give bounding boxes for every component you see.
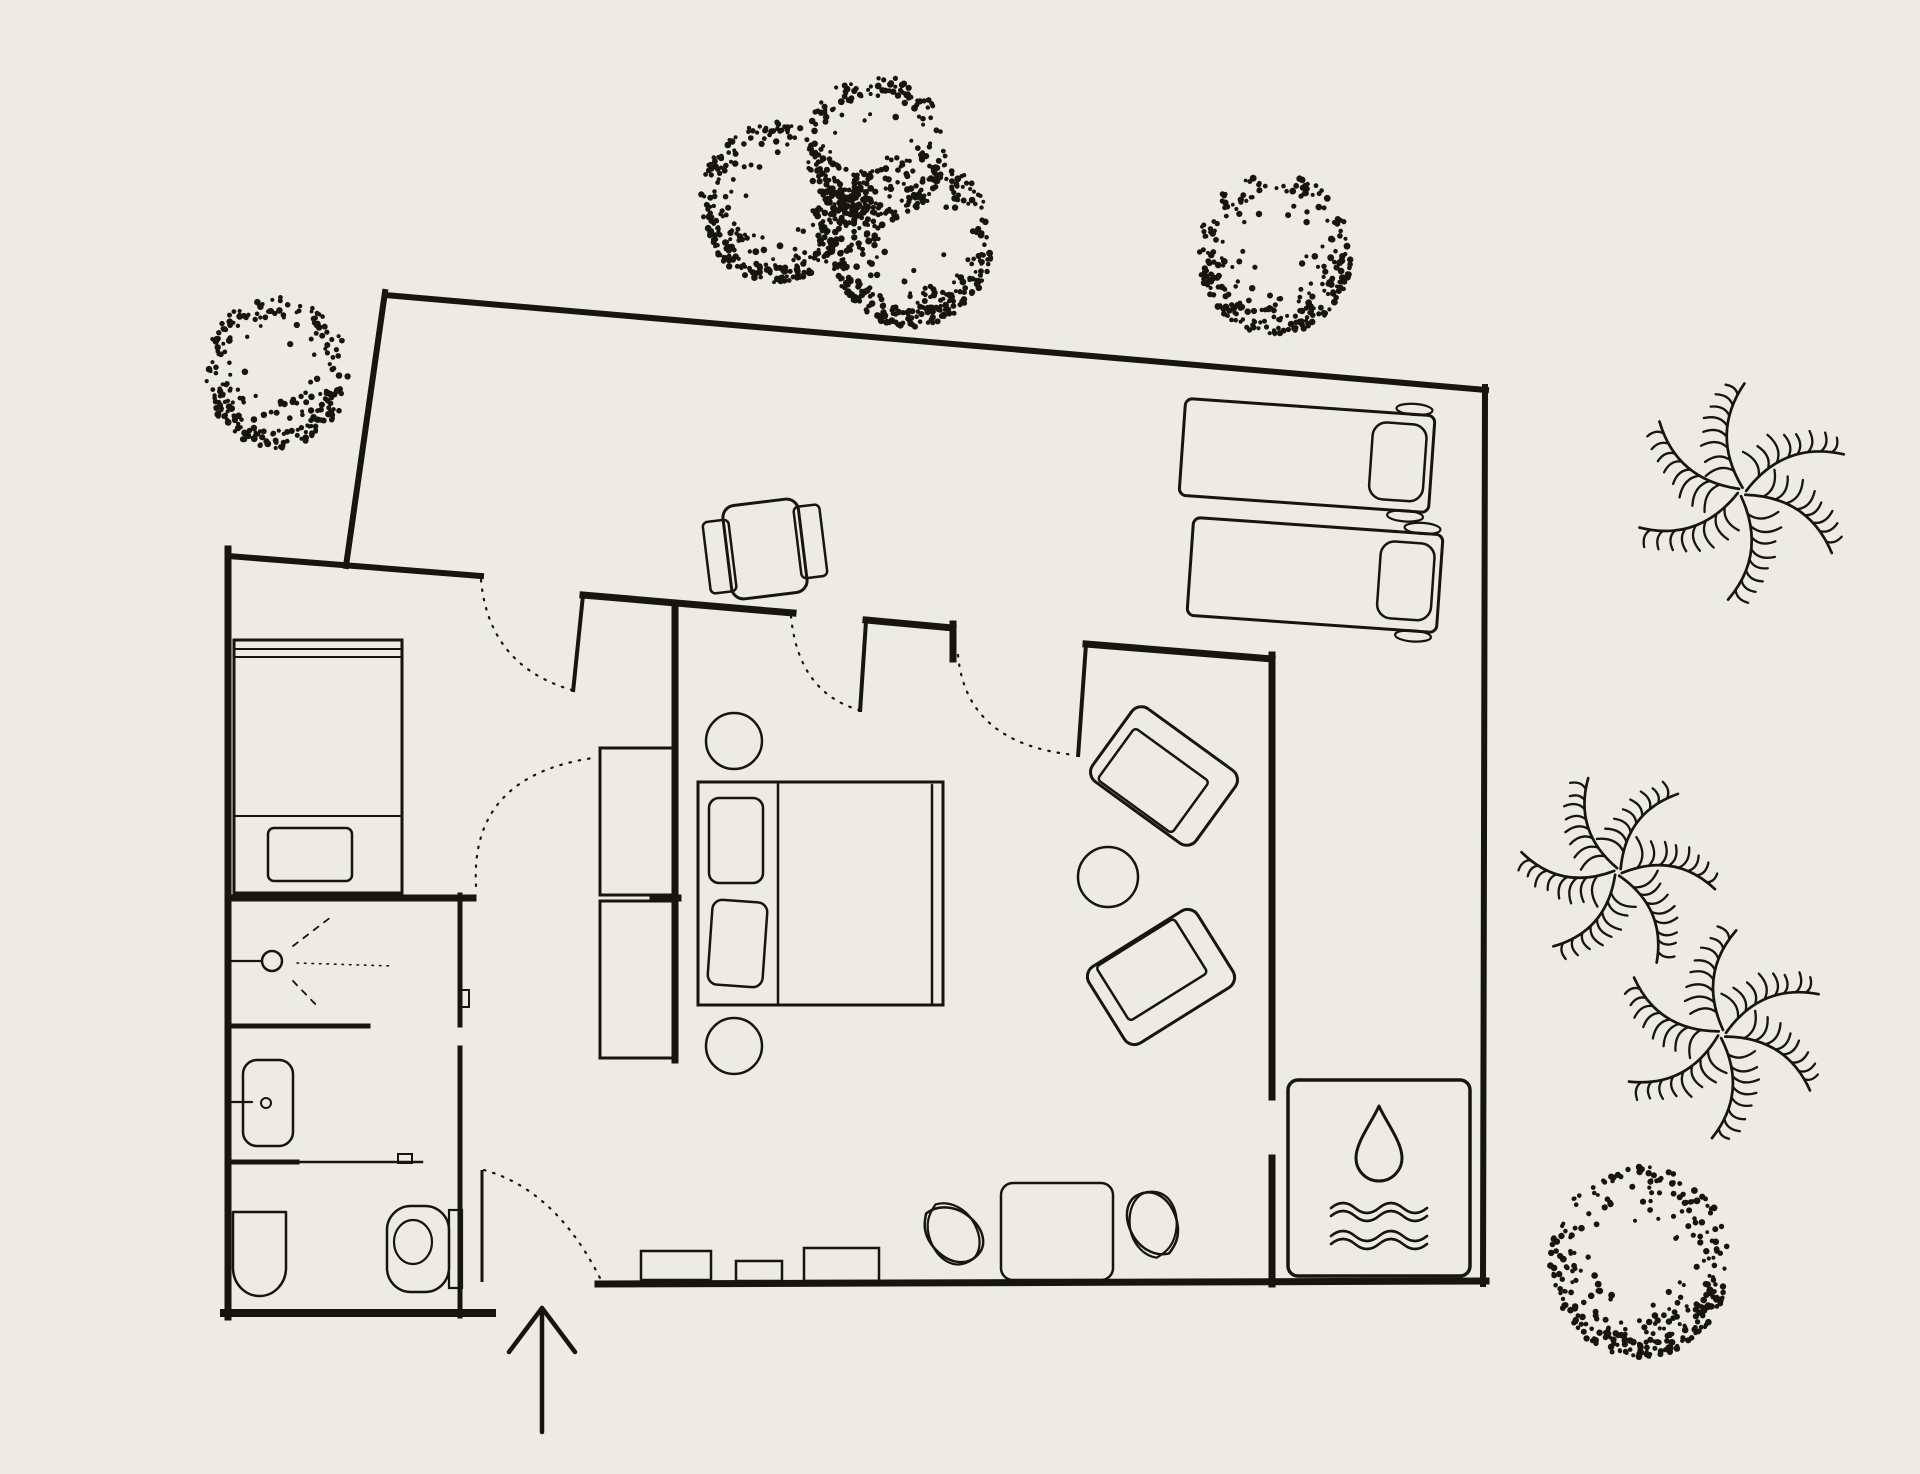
door1-leaf [573,595,583,692]
tree-southeast-dot [1705,1230,1709,1234]
tree-northwest-dot [238,309,242,313]
tree-cluster-top-dot [918,189,922,193]
tree-cluster-left-dot [735,264,740,269]
tree-cluster-core-dot [857,245,862,250]
tree-southeast-dot [1630,1339,1637,1346]
tree-southeast-dot [1581,1329,1587,1335]
tree-southeast-dot [1662,1327,1666,1331]
palm-tree-1-frond [1734,417,1847,490]
tree-cluster-top-dot [928,115,933,120]
tree-northeast-dot [1276,326,1281,331]
tree-northeast-dot [1289,188,1296,195]
tree-northeast-dot [1304,254,1308,258]
tree-southeast-dot [1656,1217,1660,1221]
armchair-1-cushion [1097,728,1209,834]
tree-northwest-dot [321,418,327,424]
tree-cluster-left-dot [750,128,755,133]
tree-northwest-dot [318,408,323,413]
tree-cluster-left-dot [747,126,751,130]
tree-northeast-dot [1326,292,1330,296]
tree-northwest-dot [322,324,328,330]
palm-tree-1-leaflet [1748,559,1769,569]
tree-cluster-top-dot [911,105,918,112]
tree-cluster-right-dot [853,263,860,270]
tree-northwest-dot [298,304,302,308]
tree-cluster-left-dot [708,166,714,172]
tree-southeast-dot [1644,1345,1650,1351]
nightstand-top [706,713,762,769]
tree-southeast-dot [1703,1281,1709,1287]
tree-southeast-dot [1631,1353,1635,1357]
tree-southeast-dot [1579,1322,1584,1327]
tree-northeast-dot [1216,273,1222,279]
palm-tree-1-leaflet [1655,531,1667,549]
tree-cluster-right-dot [868,294,873,299]
tree-cluster-top-dot [814,162,819,167]
tree-southeast-dot [1715,1295,1720,1300]
tree-cluster-right-dot [908,291,912,295]
tree-northwest-dot [278,399,284,405]
tree-northwest-dot [324,330,329,335]
tree-northeast-dot [1262,319,1267,324]
tree-cluster-left-dot [742,272,748,278]
tree-northwest-dot [319,402,325,408]
tree-southeast-dot [1707,1256,1711,1260]
tree-cluster-top-dot [941,149,946,154]
tree-cluster-right-dot [960,279,967,286]
palm-tree-3-leaflet [1689,1065,1702,1089]
palm-tree-3-frond [1679,922,1747,1030]
tree-northwest-dot [314,322,320,328]
tree-cluster-right-dot [981,200,985,204]
palm-tree-1-leaflet [1750,521,1781,536]
tree-southeast-dot [1565,1265,1570,1270]
palm-tree-2-frond-spine [1578,776,1617,872]
tree-northwest-dot [314,331,319,336]
tree-cluster-left-dot [728,237,732,241]
tree-northeast-dot [1337,233,1343,239]
tree-northeast-dot [1347,262,1353,268]
tree-northeast-dot [1272,315,1277,320]
tree-southeast-dot [1684,1200,1689,1205]
tree-northeast-dot [1252,265,1257,270]
tree-southeast-dot [1561,1297,1565,1301]
tree-cluster-right-dot [942,302,949,309]
tree-cluster-core-dot [839,215,845,221]
tree-northwest-dot [257,443,262,448]
tree-cluster-right-dot [835,264,840,269]
tree-southeast-dot [1579,1269,1583,1273]
plan-objects-layer [233,917,462,1296]
tree-northeast-dot [1330,290,1337,297]
tree-cluster-core-dot [855,192,861,198]
tree-cluster-right-dot [982,219,989,226]
tree-cluster-left-dot [725,205,731,211]
tree-cluster-left-dot [733,151,739,157]
tree-cluster-left-dot [731,177,736,182]
tree-southeast-dot [1653,1321,1658,1326]
tree-northwest-dot [273,438,279,444]
tree-northeast-dot [1267,293,1273,299]
tree-northwest-dot [245,335,249,339]
palm-tree-2-leaflet [1587,875,1606,906]
palm-tree-2-leaflet [1679,846,1691,870]
tree-southeast-dot [1702,1259,1706,1263]
tree-northwest-dot [255,300,260,305]
tree-cluster-top-dot [815,167,821,173]
tree-cluster-left-dot [726,263,732,269]
palm-tree-3-leaflet [1733,986,1748,1013]
tree-cluster-core-dot [836,226,842,232]
palm-tree-1-leaflet [1744,570,1764,582]
tree-northeast-dot [1211,219,1216,224]
tree-northeast-dot [1223,192,1228,197]
tree-cluster-top-dot [938,129,943,134]
tree-southeast-dot [1719,1224,1724,1229]
tree-cluster-top-dot [868,112,872,116]
tree-northeast-dot [1233,284,1238,289]
tree-cluster-right-dot [895,180,900,185]
tree-northeast-dot [1309,281,1313,285]
tree-cluster-left-dot [787,134,793,140]
tree-southeast-dot [1581,1300,1587,1306]
tree-northwest-dot [232,309,237,314]
tree-cluster-left-dot [764,263,769,268]
console-3 [804,1248,879,1281]
tree-northwest-dot [254,394,258,398]
tree-northwest-dot [210,337,214,341]
tree-northwest-dot [221,342,225,346]
palm-tree-2-leaflet [1628,837,1647,868]
tree-cluster-top-dot [893,85,897,89]
tree-northwest-dot [258,315,262,319]
tree-northeast-dot [1244,308,1251,315]
tree-cluster-top-dot [927,177,932,182]
palm-tree-2-leaflet [1657,926,1677,939]
tree-southeast-dot [1619,1320,1623,1324]
bed-pillow-1 [709,798,763,883]
tree-northeast-dot [1273,330,1277,334]
tree-cluster-right-dot [978,232,985,239]
tree-cluster-left-dot [726,150,731,155]
tree-northwest-dot [224,400,228,404]
tree-northeast-dot [1250,195,1254,199]
tree-northwest-dot [334,347,339,352]
palm-tree-1-leaflet [1705,455,1731,465]
tree-northeast-dot [1302,183,1308,189]
tree-northeast-dot [1220,198,1225,203]
tree-cluster-top-dot [869,84,873,88]
tree-southeast-dot [1699,1219,1705,1225]
tree-cluster-right-dot [968,187,972,191]
tree-southeast-dot [1671,1191,1677,1197]
tree-northeast-dot [1278,296,1284,302]
tree-northwest-dot [324,389,329,394]
palm-tree-1-frond [1718,496,1787,608]
tree-northwest-dot [323,347,327,351]
tree-northwest-dot [242,369,249,376]
tree-cluster-left-dot [723,194,729,200]
tree-cluster-left-dot [752,248,759,255]
tree-northwest-dot [231,413,236,418]
tree-cluster-core-dot [864,230,871,237]
tree-northwest-dot [212,393,216,397]
palm-tree-1-leaflet [1723,505,1739,533]
tree-northeast-dot [1307,291,1311,295]
bath-wall-top [228,556,481,576]
tree-northeast-dot [1234,207,1238,211]
tree-cluster-top-dot [843,167,848,172]
bed-pillow-2 [707,899,768,988]
tree-cluster-right-dot [890,308,894,312]
tree-northeast-dot [1298,287,1303,292]
tree-northeast-dot [1344,237,1348,241]
tree-northeast-dot [1240,249,1245,254]
tree-cluster-left-dot [777,242,784,249]
tree-northeast-dot [1203,234,1208,239]
tree-northwest-dot [259,324,263,328]
palm-tree-1-leaflet [1743,449,1760,479]
tree-southeast-dot [1703,1248,1709,1254]
tree-southeast-dot [1606,1331,1611,1336]
tree-northeast-dot [1265,306,1271,312]
palm-tree-3-frond [1702,1038,1766,1145]
tree-southeast-dot [1618,1348,1622,1352]
tree-cluster-left-dot [758,275,763,280]
tree-cluster-left-dot [778,278,784,284]
palm-tree-2-leaflet [1528,864,1539,879]
tree-cluster-top-dot [849,95,855,101]
tree-northwest-dot [226,318,233,325]
tree-cluster-left-dot [744,193,749,198]
palm-tree-1-leaflet [1691,526,1702,552]
tree-cluster-left-dot [802,259,807,264]
tree-southeast-dot [1678,1295,1683,1300]
tree-cluster-right-dot [976,285,983,292]
tree-cluster-right-dot [875,255,879,259]
tree-cluster-right-dot [883,176,889,182]
tree-southeast-dot [1625,1351,1629,1355]
tree-cluster-core-dot [875,225,880,230]
tree-northeast-dot [1342,279,1348,285]
door1-swing-arc [481,580,572,690]
tree-northwest-dot [309,337,314,342]
tree-southeast-dot [1657,1351,1663,1357]
tree-northeast-dot [1298,194,1303,199]
tree-cluster-left-dot [788,269,793,274]
tree-cluster-top-dot [930,103,935,108]
tree-southeast-dot [1712,1263,1718,1269]
tree-cluster-left-dot [712,189,717,194]
palm-tree-1-leaflet [1747,505,1778,522]
tree-southeast-dot [1666,1318,1672,1324]
shower-spray-up [293,917,331,946]
tree-cluster-left-dot [722,239,729,246]
tree-southeast-dot [1671,1180,1676,1185]
tree-cluster-left-dot [737,257,741,261]
tree-northeast-dot [1244,199,1248,203]
tree-northwest-dot [336,372,343,379]
palm-tree-1-leaflet [1679,529,1690,552]
tree-cluster-core-dot [850,202,856,208]
tree-cluster-left-dot [711,220,715,224]
tree-southeast-dot [1649,1190,1654,1195]
tree-cluster-right-dot [880,303,886,309]
tree-cluster-left-dot [764,126,769,131]
tree-cluster-core-dot [847,220,852,225]
tree-cluster-right-dot [906,308,912,314]
palm-tree-1-leaflet [1697,483,1726,512]
tree-northeast-dot [1285,212,1291,218]
tree-cluster-left-dot [723,165,727,169]
tree-northwest-dot [328,362,332,366]
tree-northeast-dot [1260,308,1264,312]
tree-northwest-dot [314,376,320,382]
palm-tree-3-leaflet [1723,1119,1742,1131]
tree-northwest-dot [267,308,273,314]
tree-northeast-dot [1303,219,1309,225]
tree-cluster-left-dot [732,160,738,166]
palm-tree-2-leaflet [1707,871,1717,884]
tree-cluster-core-dot [833,236,840,243]
tree-cluster-top-dot [907,195,913,201]
tree-cluster-top-dot [818,110,824,116]
closet-tv-unit [268,828,352,881]
tree-cluster-left-dot [705,225,712,232]
palm-tree-3-leaflet [1730,1097,1752,1107]
tree-southeast-dot [1633,1219,1637,1223]
shower-head [262,951,282,971]
palm-tree-3-leaflet [1690,969,1715,980]
tree-northwest-dot [216,348,220,352]
tree-cluster-right-dot [885,156,890,161]
palm-tree-2-leaflet [1566,877,1579,904]
tree-northeast-dot [1296,175,1303,182]
tree-cluster-left-dot [794,254,799,259]
tree-cluster-top-dot [927,192,931,196]
tree-cluster-top-dot [821,144,825,148]
tree-cluster-left-dot [741,141,747,147]
palm-tree-1-leaflet [1803,431,1816,452]
tree-cluster-right-dot [829,221,833,225]
tree-southeast-dot [1644,1340,1649,1345]
tree-northwest-dot [270,298,274,302]
console-2 [736,1261,782,1281]
tree-cluster-left-dot [790,124,794,128]
tree-cluster-left-dot [793,135,798,140]
tree-northeast-dot [1321,264,1326,269]
tree-southeast-dot [1577,1193,1582,1198]
tree-southeast-dot [1568,1290,1574,1296]
tree-southeast-dot [1576,1326,1581,1331]
tree-cluster-left-dot [702,194,706,198]
tree-southeast-dot [1693,1331,1697,1335]
tree-southeast-dot [1651,1303,1656,1308]
tree-cluster-right-dot [839,284,843,288]
tree-cluster-right-dot [970,228,976,234]
tree-southeast-dot [1713,1282,1718,1287]
tree-southeast-dot [1558,1291,1562,1295]
tree-northeast-dot [1242,220,1246,224]
tree-cluster-core-dot [865,204,871,210]
tree-northwest-dot [261,428,267,434]
tree-cluster-left-dot [729,138,736,145]
tree-cluster-left-dot [748,268,753,273]
tree-cluster-right-dot [974,270,978,274]
tree-southeast-dot [1647,1207,1653,1213]
tree-northeast-dot [1213,237,1219,243]
tree-cluster-left-dot [774,120,779,125]
tree-northwest-dot [270,432,275,437]
tree-cluster-right-dot [888,184,893,189]
tree-cluster-left-dot [767,133,772,138]
tree-southeast-dot [1648,1165,1652,1169]
tree-southeast [1547,1164,1729,1360]
tree-northwest-dot [210,387,215,392]
tree-northeast-dot [1220,306,1226,312]
palm-tree-3-leaflet [1779,975,1790,994]
tree-cluster-right-dot [922,298,928,304]
palm-tree-1-leaflet [1715,394,1734,405]
tree-northwest-dot [217,386,222,391]
tree-southeast-dot [1560,1224,1564,1228]
tree-cluster-core-dot [855,214,860,219]
palm-tree-2-leaflet [1579,855,1607,870]
tree-northwest-dot [299,437,303,441]
tree-southeast-dot [1658,1326,1662,1330]
tree-southeast-dot [1640,1199,1646,1205]
tree-cluster-right-dot [952,280,956,284]
tree-cluster-right-dot [931,168,937,174]
tree-northeast-dot [1257,326,1261,330]
tree-cluster-right-dot [925,309,931,315]
tree-cluster-left-dot [704,202,710,208]
tree-cluster-left-dot [732,248,737,253]
tree-cluster-core-dot [837,250,844,257]
tree-cluster-left-dot [782,271,786,275]
palm-tree-3-leaflet [1698,1056,1716,1085]
palm-tree-3-leaflet [1731,1062,1757,1074]
tree-cluster-left-dot [797,125,803,131]
tree-southeast-dot [1699,1194,1705,1200]
door3-leaf [1078,644,1086,757]
tree-southeast-dot [1623,1327,1628,1332]
tree-cluster-right-dot [938,298,943,303]
tree-cluster-right-dot [979,205,983,209]
tree-northeast [1197,175,1354,337]
ottoman-table [1001,1183,1113,1280]
tree-northwest-dot [328,409,334,415]
tree-northwest-dot [276,307,283,314]
tree-cluster-left-dot [810,178,816,184]
tree-cluster-right-dot [962,290,967,295]
tree-cluster-right-dot [836,273,842,279]
tree-cluster-left-dot [752,233,756,237]
tree-southeast-dot [1668,1345,1674,1351]
tree-southeast-dot [1678,1322,1682,1326]
tree-southeast-dot [1608,1174,1614,1180]
tree-northeast-dot [1256,211,1262,217]
palm-tree-3-leaflet [1632,1082,1647,1100]
tree-cluster-top-dot [871,219,877,225]
tree-cluster-right-dot [912,324,918,330]
tree-cluster-right-dot [844,290,850,296]
pouf-2 [1104,1173,1203,1276]
tree-cluster-top-dot [936,158,942,164]
tree-northwest-dot [274,410,280,416]
tree-southeast-dot [1720,1290,1726,1296]
tree-northeast-dot [1277,317,1282,322]
